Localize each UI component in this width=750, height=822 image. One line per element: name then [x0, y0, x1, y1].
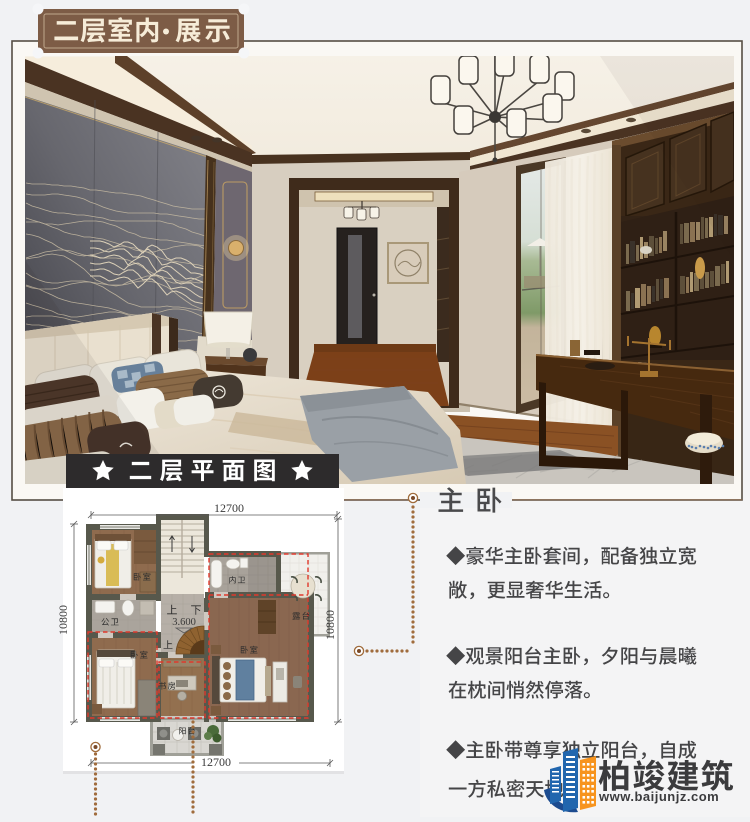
svg-text:10800: 10800 — [56, 605, 70, 635]
svg-text:12700: 12700 — [201, 755, 231, 769]
svg-text:12700: 12700 — [214, 501, 244, 515]
svg-text:10800: 10800 — [323, 610, 337, 640]
svg-text:www.baijunjz.com: www.baijunjz.com — [598, 789, 719, 804]
svg-text:3.600: 3.600 — [172, 617, 196, 628]
